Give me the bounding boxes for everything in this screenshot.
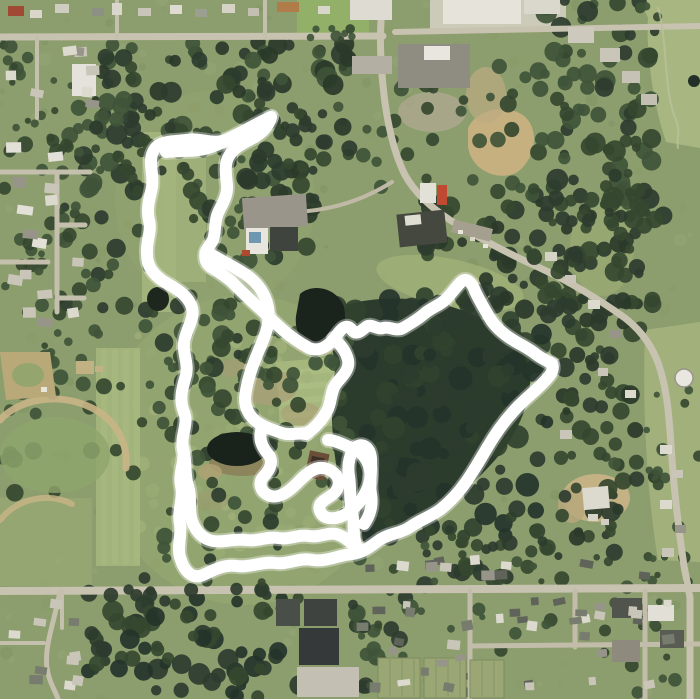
satellite-imagery — [0, 0, 700, 699]
satellite-map — [0, 0, 700, 699]
map-viewport — [0, 0, 700, 699]
